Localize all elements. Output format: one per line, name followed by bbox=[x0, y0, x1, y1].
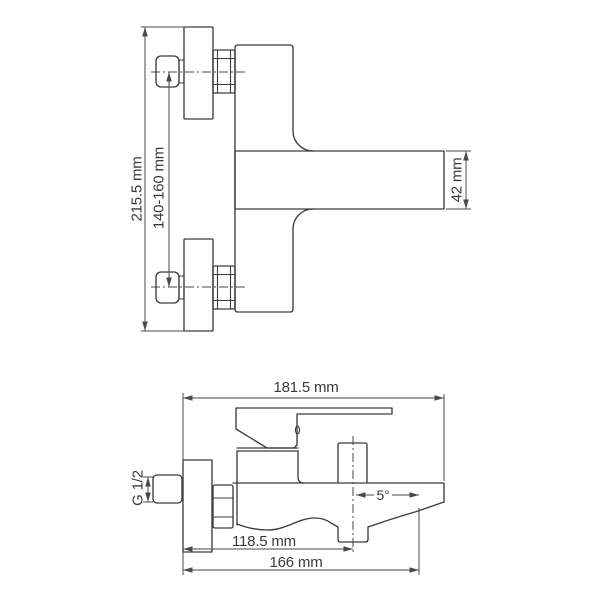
dim-spout-reach-label: 118.5 mm bbox=[232, 533, 296, 550]
dim-thread-label: G 1/2 bbox=[129, 470, 146, 506]
dim-spout-height: 42 mm bbox=[446, 151, 471, 209]
dim-connection-centers: 140-160 mm bbox=[150, 72, 169, 287]
dim-overall-reach: 166 mm bbox=[183, 554, 419, 571]
dim-overall-length: 181.5 mm bbox=[183, 379, 444, 481]
dim-overall-reach-label: 166 mm bbox=[270, 554, 323, 571]
mixer-dimension-drawing: 215.5 mm 140-160 mm 42 mm bbox=[0, 0, 600, 600]
flange-bottom bbox=[184, 239, 213, 331]
spout-top-edge bbox=[233, 483, 444, 502]
dim-spout-reach: 118.5 mm bbox=[183, 533, 353, 550]
side-view: 181.5 mm 5° 118.5 mm 166 mm G 1/2 bbox=[129, 379, 444, 575]
dim-connection-centers-label: 140-160 mm bbox=[150, 147, 167, 229]
mixer-body-outline bbox=[235, 45, 313, 312]
dim-overall-height-label: 215.5 mm bbox=[128, 156, 145, 221]
lever-handle bbox=[236, 408, 392, 448]
hex-nut-side bbox=[213, 485, 233, 528]
dim-spout-angle-label: 5° bbox=[377, 487, 390, 503]
dim-thread: G 1/2 bbox=[129, 470, 153, 506]
flange-side bbox=[183, 460, 212, 552]
dim-spout-height-label: 42 mm bbox=[448, 158, 465, 203]
front-view: 215.5 mm 140-160 mm 42 mm bbox=[128, 27, 471, 331]
body-right-edge bbox=[298, 451, 304, 483]
spout-bar bbox=[235, 151, 444, 209]
dim-spout-angle: 5° bbox=[356, 487, 419, 503]
technical-drawing-canvas: 215.5 mm 140-160 mm 42 mm bbox=[0, 0, 600, 600]
cartridge-seam bbox=[237, 448, 298, 451]
thread-tail bbox=[153, 475, 182, 503]
flange-top bbox=[184, 27, 213, 119]
dim-overall-length-label: 181.5 mm bbox=[273, 379, 338, 396]
